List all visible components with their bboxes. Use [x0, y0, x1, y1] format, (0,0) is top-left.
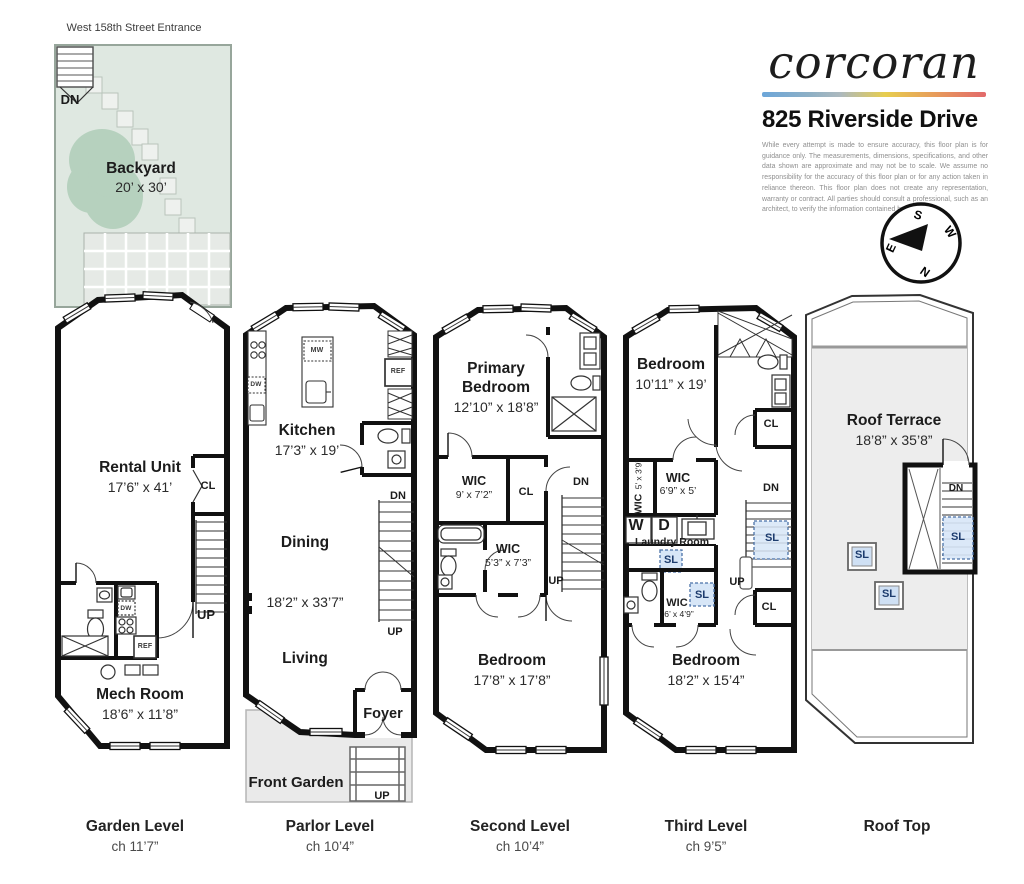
front-garden-name: Front Garden [248, 774, 343, 792]
garden-cl-label: CL [201, 480, 216, 493]
parlor-ref-label: REF [391, 368, 406, 376]
second-wic2-name: WIC [496, 542, 520, 557]
third-up-label: UP [729, 576, 744, 589]
roof-sl1-label: SL [855, 549, 869, 562]
dining-name: Dining [281, 534, 329, 553]
washer-label: W [628, 516, 643, 535]
third-sl2-label: SL [765, 532, 779, 545]
corcoran-logo: corcoran [760, 36, 988, 89]
caption-parlor-level: Parlor Level ch 10’4” [286, 818, 375, 854]
third-bedroom2-name: Bedroom [672, 652, 740, 671]
backyard-dims: 20’ x 30’ [115, 179, 167, 196]
third-wic1-name: WIC [632, 494, 644, 514]
caption-third-title: Third Level [665, 818, 748, 836]
third-cl2-label: CL [762, 601, 777, 614]
dryer-label: D [658, 516, 670, 535]
third-sl1-label: SL [664, 554, 678, 567]
caption-garden-level: Garden Level ch 11’7” [86, 818, 184, 854]
parlor-dims: 18’2” x 33’7” [266, 594, 343, 611]
third-sl3-label: SL [695, 589, 709, 602]
backyard-name: Backyard [106, 160, 176, 179]
parlor-dw-label: DW [250, 381, 261, 389]
second-cl-label: CL [519, 486, 534, 499]
kitchen-name: Kitchen [279, 422, 336, 441]
roof-dn-label: DN [949, 483, 963, 495]
property-address: 825 Riverside Drive [762, 106, 990, 134]
caption-roof-title: Roof Top [864, 818, 931, 836]
second-up-label: UP [548, 575, 563, 588]
garden-walls [58, 295, 227, 746]
mech-room-dims: 18’6” x 11’8” [102, 706, 178, 723]
caption-roof-top: Roof Top [864, 818, 931, 839]
roof-sl2-label: SL [882, 588, 896, 601]
caption-second-level: Second Level ch 10’4” [470, 818, 570, 854]
garden-dw-label: DW [120, 605, 131, 613]
caption-second-ch: ch 10’4” [470, 839, 570, 854]
third-bedroom2-dims: 18’2” x 15’4” [667, 672, 744, 689]
garden-ref-label: REF [138, 643, 153, 651]
living-name: Living [282, 650, 328, 669]
parlor-up-label: UP [387, 626, 402, 639]
third-bedroom1-dims: 10’11” x 19’ [635, 376, 706, 393]
roof-sl-stairs-label: SL [951, 531, 965, 544]
second-bedroom-dims: 17’8” x 17’8” [473, 672, 550, 689]
kitchen-dims: 17’3” x 19’ [275, 442, 340, 459]
floor-plan-page: corcoran 825 Riverside Drive While every… [0, 0, 1024, 884]
caption-parlor-ch: ch 10’4” [286, 839, 375, 854]
third-dn-label: DN [763, 482, 779, 495]
third-wic1-dims: 5’ x 3’9” [633, 460, 643, 489]
toilet-icon [441, 549, 456, 556]
toilet-icon [642, 573, 657, 580]
mech-room-name: Mech Room [96, 686, 184, 705]
primary-bedroom-dims: 12’10” x 18’8” [454, 399, 539, 416]
garden-level-plan [50, 40, 235, 760]
third-wic2-name: WIC [666, 471, 690, 486]
third-cl1-label: CL [764, 418, 779, 431]
toilet-icon [758, 355, 778, 369]
caption-garden-title: Garden Level [86, 818, 184, 836]
street-entrance-label: West 158th Street Entrance [67, 22, 202, 34]
garden-up-label: UP [197, 607, 215, 623]
sink-icon [250, 405, 264, 421]
boiler-icon [101, 665, 115, 679]
third-wic3-dims: 6’ x 4’9” [664, 609, 693, 619]
caption-parlor-title: Parlor Level [286, 818, 375, 836]
island-sink-icon [306, 381, 326, 403]
front-stairs-up-label: UP [374, 790, 389, 803]
caption-third-ch: ch 9’5” [665, 839, 748, 854]
second-wic2-dims: 5’3” x 7’3” [485, 557, 531, 570]
parlor-dn-label: DN [390, 490, 406, 503]
caption-garden-ch: ch 11’7” [86, 839, 184, 854]
rental-unit-name: Rental Unit [99, 459, 181, 478]
toilet-icon [378, 429, 398, 443]
third-wic2-dims: 6’9” x 5’ [660, 485, 697, 498]
third-wic1-label: WIC 5’ x 3’9” [627, 460, 646, 514]
stove-icon [251, 342, 257, 348]
second-wic1-dims: 9’ x 7’2” [456, 489, 492, 502]
caption-second-title: Second Level [470, 818, 570, 836]
compass-icon: S W N E [875, 198, 970, 293]
roof-top-plan [805, 285, 992, 765]
kitchen-counter [248, 331, 266, 425]
second-bedroom-name: Bedroom [478, 652, 546, 671]
roof-terrace-dims: 18’8” x 35’8” [855, 432, 932, 449]
second-dn-label: DN [573, 476, 589, 489]
second-wic1-name: WIC [462, 474, 486, 489]
foyer-name: Foyer [363, 706, 403, 723]
parlor-mw-label: MW [311, 347, 324, 355]
third-bedroom1-name: Bedroom [637, 356, 705, 375]
primary-bedroom-name: Primary Bedroom [436, 360, 556, 397]
rental-unit-dims: 17’6” x 41’ [108, 479, 173, 496]
caption-third-level: Third Level ch 9’5” [665, 818, 748, 854]
backyard-dn-label: DN [61, 92, 80, 108]
toilet-icon [571, 376, 591, 390]
toilet-icon [88, 610, 103, 618]
roof-terrace-name: Roof Terrace [847, 412, 941, 431]
brand-rainbow-bar [762, 92, 986, 97]
laundry-room-name: Laundry Room [635, 536, 709, 549]
